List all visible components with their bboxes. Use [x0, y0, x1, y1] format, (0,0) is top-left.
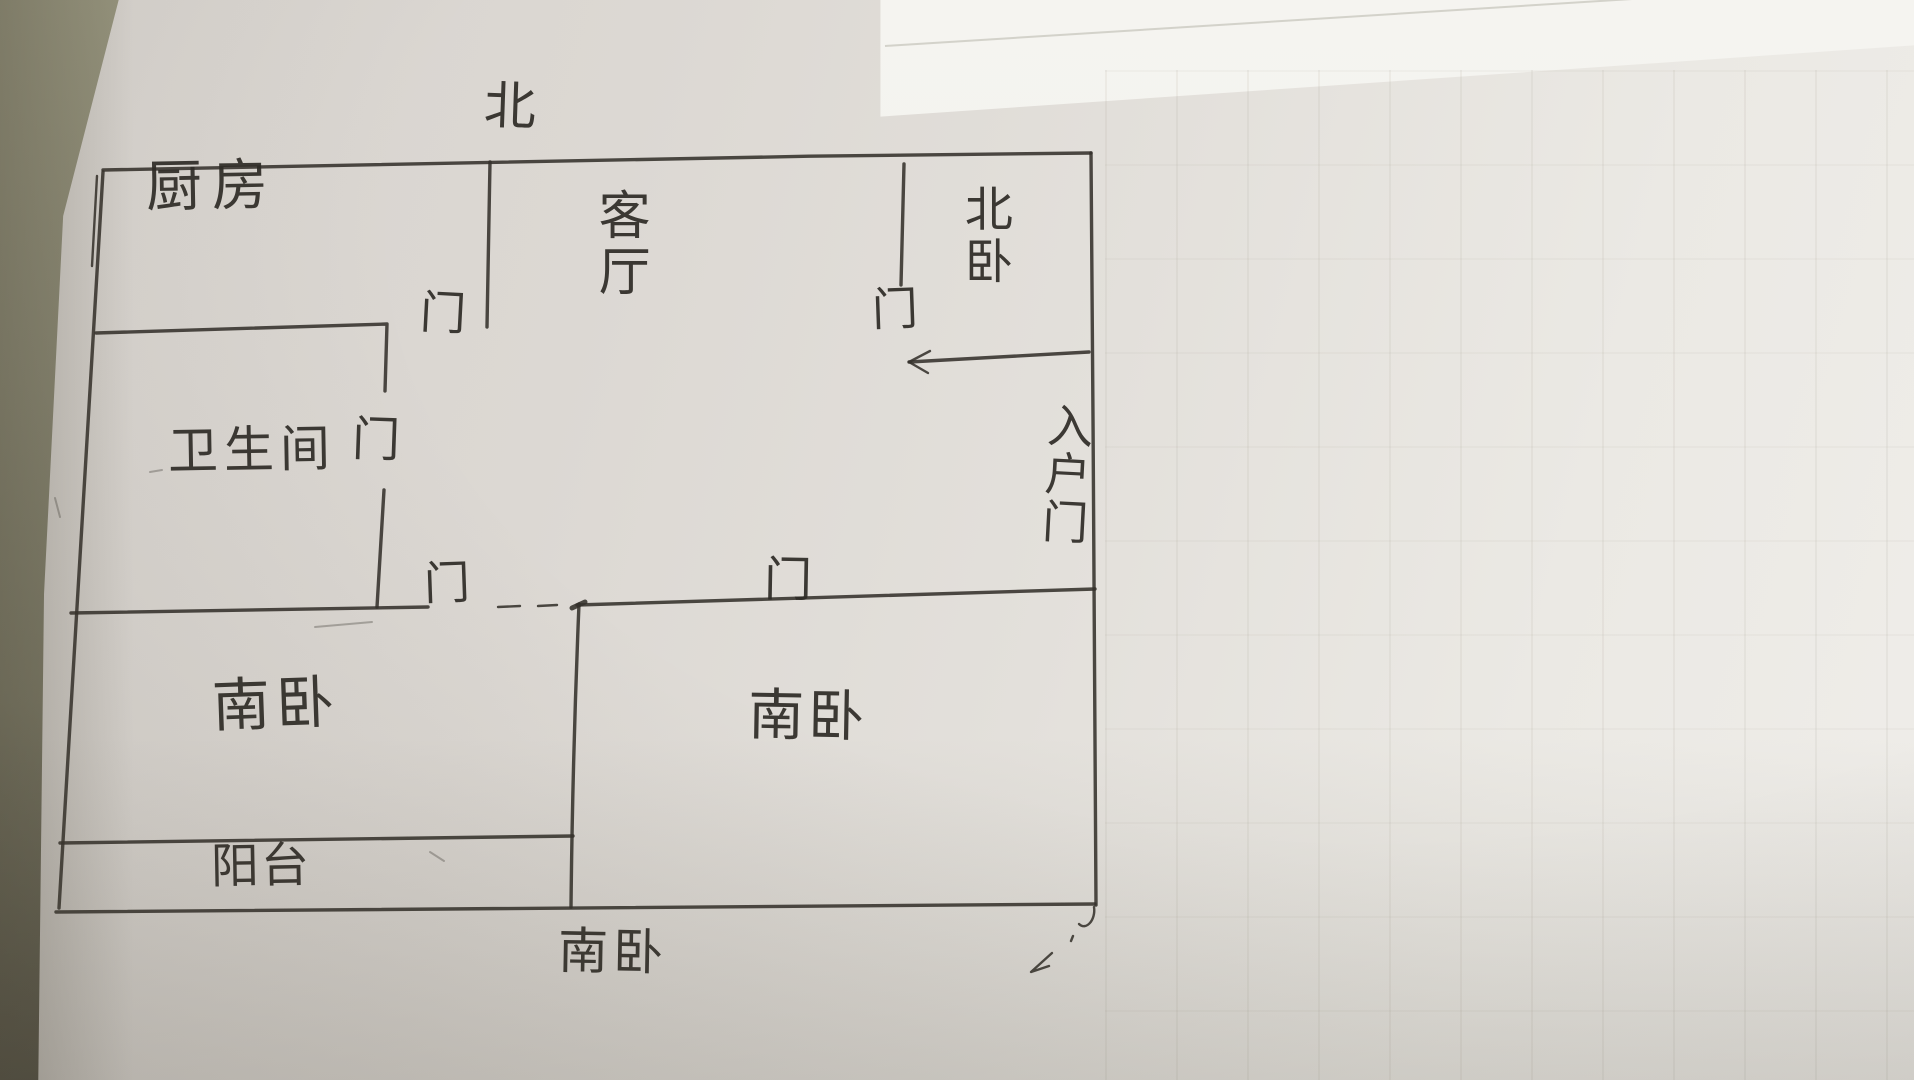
kitchen-label: 厨房: [146, 157, 279, 218]
wall-balcony-north: [60, 836, 573, 843]
wall-middle-east: [577, 589, 1095, 605]
south-bedroom-left-label: 南卧: [211, 672, 341, 737]
left-edge-tick: [55, 498, 60, 517]
south-bedroom-right-door-label: 门: [764, 556, 813, 607]
south-bedroom-left-door-label: 门: [423, 559, 471, 608]
wall-north-bedroom-south: [909, 352, 1089, 362]
living-room-label: 客厅: [592, 188, 646, 300]
bathroom-tick: [150, 470, 162, 472]
wall-bathroom-north: [96, 324, 387, 391]
wall-bathroom-door-jamb: [377, 490, 384, 607]
photo-of-floor-plan: 北 南卧 厨房 客厅 北卧 卫生间 南卧 南卧 阳台 门 门 门 门 门 入户门: [0, 0, 1914, 1080]
bathroom-door-label: 门: [351, 415, 401, 467]
entry-door-label: 入户门: [1036, 401, 1091, 547]
north-compass-label: 北: [483, 79, 537, 135]
wall-middle-west: [71, 607, 428, 613]
corner-hook-mark: [1071, 907, 1094, 941]
wall-east: [1091, 153, 1096, 905]
wall-kitchen-living-divider: [487, 162, 490, 327]
wall-south-bedroom-divider: [571, 604, 579, 907]
kitchen-door-label: 门: [419, 289, 467, 339]
bathroom-label: 卫生间: [168, 423, 337, 478]
north-bedroom-label: 北卧: [958, 184, 1008, 288]
south-bedroom-right-label: 南卧: [748, 687, 869, 747]
wall-north-bedroom-divider: [901, 164, 904, 285]
balcony-label: 阳台: [211, 841, 312, 893]
wall-west: [59, 172, 103, 908]
pencil-dashes: [315, 622, 372, 627]
arrowhead-mark: [1031, 953, 1052, 972]
balcony-smudge: [430, 852, 444, 861]
wall-south: [56, 904, 1095, 912]
south-side-label: 南卧: [558, 925, 669, 979]
north-bedroom-door-label: 门: [871, 285, 919, 334]
floorplan-line-drawing: [0, 0, 1914, 1080]
wall-middle-door-dashes: [498, 605, 557, 607]
wall-west-double-stroke: [92, 176, 97, 266]
